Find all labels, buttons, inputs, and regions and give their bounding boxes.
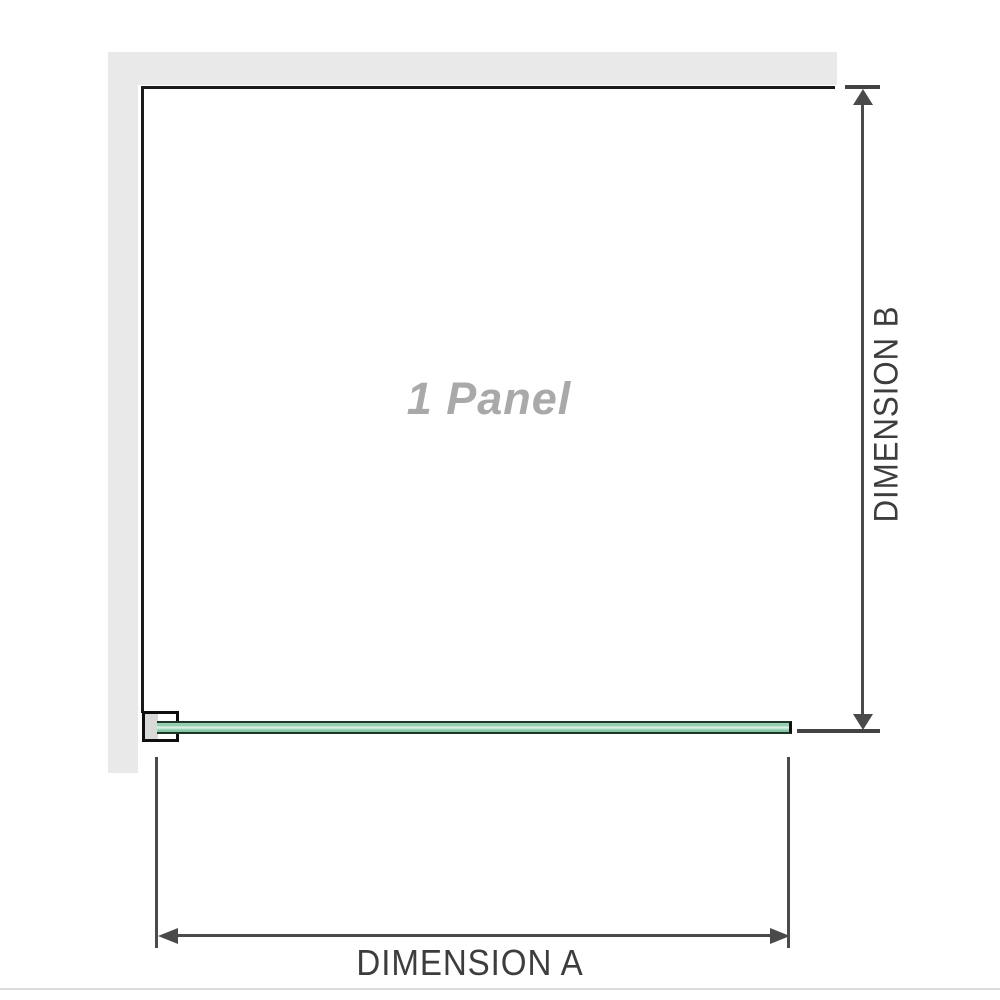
wall-top (108, 52, 837, 85)
arrow-down-icon (853, 714, 873, 730)
footer-rule (0, 988, 1000, 990)
glass-panel-bar (157, 721, 792, 734)
dimension-a-line (176, 934, 772, 937)
dimension-a-label: DIMENSION A (356, 942, 583, 984)
panel-count-label: 1 Panel (407, 373, 572, 425)
shower-panel-diagram: 1 Panel DIMENSION B DIMENSION A (0, 0, 1000, 1000)
wall-top-edge-line (141, 86, 835, 89)
wall-left (108, 52, 138, 773)
dimension-a-left-extension (155, 757, 158, 948)
dimension-a-right-extension (787, 757, 790, 948)
wall-left-edge-line (141, 86, 144, 713)
dimension-b-line (861, 101, 864, 716)
arrow-left-icon (158, 928, 178, 944)
dimension-b-label: DIMENSION B (868, 306, 907, 523)
dimension-b-bottom-tick (797, 729, 880, 733)
arrow-right-icon (770, 928, 790, 944)
